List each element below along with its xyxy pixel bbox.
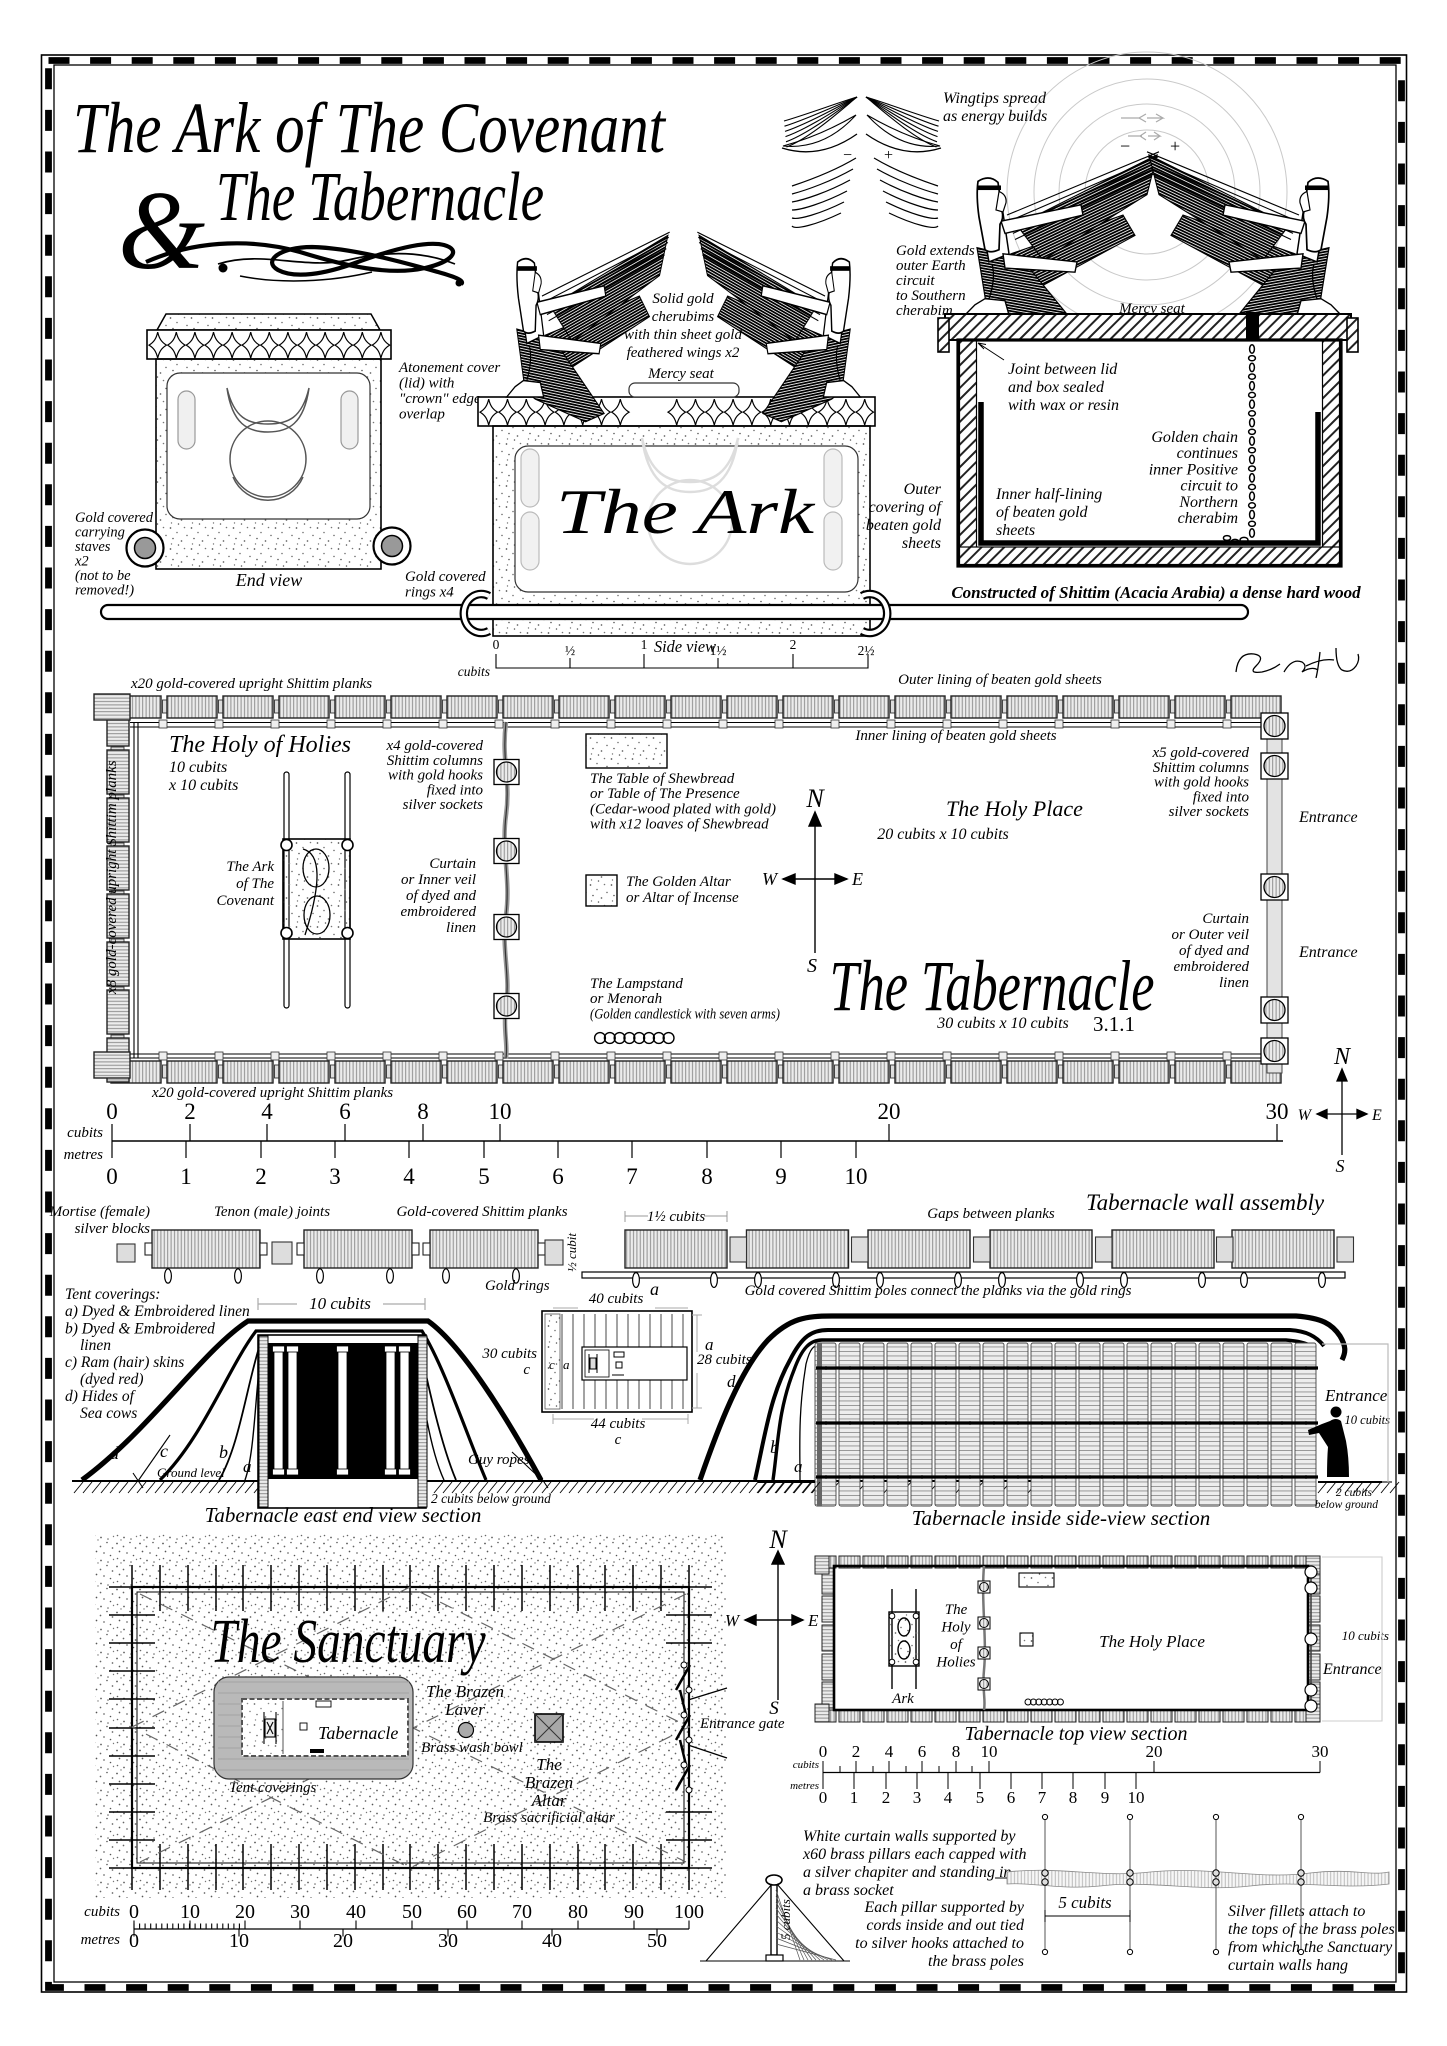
svg-text:4: 4 — [944, 1788, 953, 1807]
svg-text:cubits: cubits — [84, 1904, 120, 1920]
svg-text:40: 40 — [346, 1901, 366, 1923]
svg-text:linen: linen — [1219, 975, 1249, 991]
svg-text:20: 20 — [1146, 1742, 1163, 1761]
svg-text:70: 70 — [512, 1901, 532, 1923]
svg-text:fixed into: fixed into — [427, 782, 484, 798]
svg-text:10: 10 — [1128, 1788, 1145, 1807]
svg-text:circuit: circuit — [896, 273, 935, 289]
svg-text:of dyed and: of dyed and — [1179, 943, 1249, 959]
svg-text:continues: continues — [1177, 445, 1238, 462]
svg-text:2: 2 — [852, 1742, 861, 1761]
svg-text:d) Hides of: d) Hides of — [65, 1388, 137, 1405]
svg-text:Gold rings: Gold rings — [485, 1278, 550, 1294]
svg-text:0: 0 — [493, 637, 500, 652]
svg-text:x5 gold-covered: x5 gold-covered — [1152, 745, 1250, 761]
svg-text:10: 10 — [180, 1901, 200, 1923]
svg-text:6: 6 — [918, 1742, 927, 1761]
svg-text:&: & — [118, 169, 205, 293]
svg-text:of The: of The — [236, 876, 274, 892]
svg-text:c: c — [549, 1357, 555, 1372]
svg-text:silver sockets: silver sockets — [403, 797, 484, 813]
svg-text:6: 6 — [552, 1164, 564, 1189]
svg-text:0: 0 — [819, 1742, 828, 1761]
svg-text:a) Dyed & Embroidered linen: a) Dyed & Embroidered linen — [65, 1303, 250, 1320]
svg-text:W: W — [762, 869, 779, 889]
svg-text:d: d — [110, 1443, 120, 1463]
svg-text:20 cubits x 10 cubits: 20 cubits x 10 cubits — [877, 826, 1009, 843]
svg-text:2: 2 — [184, 1099, 196, 1124]
svg-text:Tabernacle inside side-view se: Tabernacle inside side-view section — [912, 1506, 1210, 1530]
svg-text:N: N — [805, 784, 825, 813]
svg-text:metres: metres — [81, 1932, 121, 1948]
svg-text:40: 40 — [542, 1930, 562, 1952]
svg-text:The Holy of Holies: The Holy of Holies — [169, 732, 351, 758]
svg-text:Shittim columns: Shittim columns — [387, 753, 483, 769]
svg-text:8: 8 — [952, 1742, 961, 1761]
svg-text:7: 7 — [626, 1164, 638, 1189]
svg-text:4: 4 — [885, 1742, 894, 1761]
svg-text:cords inside and out tied: cords inside and out tied — [866, 1917, 1025, 1934]
svg-text:N: N — [768, 1525, 788, 1554]
svg-text:Holies: Holies — [935, 1655, 975, 1671]
svg-text:x20 gold-covered upright Shitt: x20 gold-covered upright Shittim planks — [130, 676, 372, 692]
svg-text:(lid) with: (lid) with — [399, 376, 454, 392]
svg-text:with wax or resin: with wax or resin — [1008, 397, 1119, 414]
svg-text:metres: metres — [64, 1147, 104, 1163]
svg-text:cubits: cubits — [458, 664, 490, 679]
svg-text:linen: linen — [80, 1337, 111, 1354]
svg-text:outer Earth: outer Earth — [896, 258, 966, 274]
svg-text:1½ cubits: 1½ cubits — [647, 1209, 705, 1225]
svg-text:b) Dyed & Embroidered: b) Dyed & Embroidered — [65, 1320, 215, 1337]
svg-text:90: 90 — [624, 1901, 644, 1923]
svg-text:The Brazen: The Brazen — [426, 1682, 504, 1701]
svg-text:8: 8 — [701, 1164, 713, 1189]
svg-text:E: E — [807, 1611, 819, 1630]
svg-text:Gold extends: Gold extends — [896, 243, 975, 259]
svg-text:Brass sacrificial altar: Brass sacrificial altar — [483, 1810, 615, 1826]
svg-text:S: S — [807, 955, 817, 977]
svg-text:1½: 1½ — [710, 643, 727, 658]
svg-text:Tenon (male) joints: Tenon (male) joints — [214, 1204, 330, 1220]
svg-text:2 cubits: 2 cubits — [1336, 1487, 1373, 1499]
svg-text:the brass poles: the brass poles — [928, 1953, 1024, 1970]
svg-text:covering of: covering of — [869, 499, 944, 516]
svg-text:6: 6 — [1007, 1788, 1016, 1807]
svg-text:with x12 loaves of Shewbread: with x12 loaves of Shewbread — [590, 817, 769, 833]
svg-text:Brass wash bowl: Brass wash bowl — [421, 1740, 523, 1756]
svg-text:S: S — [1336, 1156, 1345, 1176]
svg-text:The: The — [536, 1755, 562, 1774]
svg-text:or Altar of Incense: or Altar of Incense — [626, 890, 739, 906]
svg-text:−: − — [1120, 136, 1130, 156]
svg-text:100: 100 — [674, 1901, 704, 1923]
svg-text:Silver fillets attach to: Silver fillets attach to — [1228, 1903, 1365, 1920]
svg-text:Constructed of Shittim (Acacia: Constructed of Shittim (Acacia Arabia) a… — [951, 583, 1361, 602]
svg-text:½ cubit: ½ cubit — [564, 1233, 579, 1272]
svg-text:a: a — [794, 1457, 803, 1476]
svg-text:Entrance: Entrance — [1298, 944, 1358, 961]
svg-text:10: 10 — [489, 1099, 512, 1124]
svg-text:The Holy Place: The Holy Place — [946, 796, 1083, 821]
svg-text:embroidered: embroidered — [400, 904, 476, 920]
svg-text:metres: metres — [790, 1780, 819, 1792]
svg-text:b: b — [219, 1442, 228, 1462]
svg-text:28 cubits: 28 cubits — [697, 1352, 752, 1368]
svg-text:Mortise (female): Mortise (female) — [49, 1204, 150, 1220]
svg-text:Inner lining of beaten gold sh: Inner lining of beaten gold sheets — [854, 728, 1056, 744]
svg-text:60: 60 — [457, 1901, 477, 1923]
svg-text:Altar: Altar — [531, 1791, 567, 1810]
svg-text:Tent coverings:: Tent coverings: — [65, 1286, 160, 1303]
svg-text:Side view: Side view — [654, 637, 717, 656]
svg-text:Outer lining of beaten gold sh: Outer lining of beaten gold sheets — [898, 672, 1102, 688]
svg-text:The Golden Altar: The Golden Altar — [626, 874, 731, 890]
svg-text:silver blocks: silver blocks — [75, 1221, 151, 1237]
svg-text:c: c — [615, 1432, 622, 1448]
svg-text:30 cubits: 30 cubits — [481, 1346, 537, 1362]
svg-text:Outer: Outer — [904, 481, 942, 498]
svg-text:c: c — [523, 1362, 530, 1378]
svg-text:3: 3 — [329, 1164, 341, 1189]
svg-text:10 cubits: 10 cubits — [309, 1294, 371, 1313]
svg-text:sheets: sheets — [902, 535, 941, 552]
svg-text:10: 10 — [229, 1930, 249, 1952]
svg-text:Golden chain: Golden chain — [1151, 429, 1238, 446]
svg-text:with gold hooks: with gold hooks — [1154, 775, 1249, 791]
svg-text:x4 gold-covered: x4 gold-covered — [386, 738, 484, 754]
svg-text:6: 6 — [339, 1099, 351, 1124]
svg-text:40 cubits: 40 cubits — [589, 1291, 644, 1307]
svg-text:3: 3 — [913, 1788, 922, 1807]
svg-text:Sea cows: Sea cows — [80, 1405, 137, 1422]
svg-text:(Golden candlestick with seven: (Golden candlestick with seven arms) — [590, 1006, 780, 1022]
svg-text:80: 80 — [568, 1901, 588, 1923]
svg-text:from which the Sanctuary: from which the Sanctuary — [1228, 1939, 1393, 1956]
svg-text:Entrance: Entrance — [1324, 1386, 1388, 1405]
svg-text:Gaps between planks: Gaps between planks — [927, 1206, 1055, 1222]
svg-text:Mercy seat: Mercy seat — [647, 366, 714, 382]
svg-text:5 cubits: 5 cubits — [1058, 1893, 1112, 1912]
svg-text:White curtain walls supported: White curtain walls supported by — [803, 1828, 1016, 1845]
svg-text:(dyed red): (dyed red) — [80, 1371, 144, 1388]
svg-text:+: + — [1170, 136, 1180, 156]
svg-text:2: 2 — [882, 1788, 891, 1807]
svg-text:cherabim: cherabim — [1178, 510, 1238, 527]
svg-text:Solid gold: Solid gold — [652, 291, 714, 307]
svg-text:of dyed and: of dyed and — [406, 888, 476, 904]
svg-text:c) Ram (hair) skins: c) Ram (hair) skins — [65, 1354, 184, 1371]
svg-text:7: 7 — [1038, 1788, 1047, 1807]
svg-text:0: 0 — [129, 1901, 139, 1923]
svg-text:The Ark: The Ark — [556, 477, 815, 547]
svg-text:b: b — [770, 1437, 779, 1457]
svg-text:Tabernacle east end view secti: Tabernacle east end view section — [205, 1503, 482, 1527]
svg-text:"crown" edge: "crown" edge — [399, 391, 481, 407]
svg-text:Covenant: Covenant — [217, 893, 275, 909]
svg-text:to Southern: to Southern — [896, 288, 966, 304]
svg-text:x8 gold-covered upright Shitti: x8 gold-covered upright Shittim planks — [104, 760, 120, 995]
svg-text:with thin sheet gold: with thin sheet gold — [624, 327, 742, 343]
svg-text:a: a — [243, 1457, 252, 1476]
svg-text:Ark: Ark — [891, 1691, 914, 1707]
svg-text:and box sealed: and box sealed — [1008, 379, 1105, 396]
svg-text:10 cubits: 10 cubits — [1345, 1413, 1391, 1427]
svg-text:Curtain: Curtain — [1202, 911, 1249, 927]
svg-text:4: 4 — [261, 1099, 273, 1124]
svg-text:with gold hooks: with gold hooks — [388, 768, 483, 784]
svg-text:30: 30 — [1266, 1099, 1289, 1124]
svg-text:embroidered: embroidered — [1173, 959, 1249, 975]
svg-text:The Table of Shewbread: The Table of Shewbread — [590, 771, 735, 787]
svg-text:Entrance: Entrance — [1298, 809, 1358, 826]
svg-text:feathered wings x2: feathered wings x2 — [627, 345, 740, 361]
svg-text:Curtain: Curtain — [429, 856, 476, 872]
svg-text:or Outer veil: or Outer veil — [1172, 927, 1249, 943]
svg-text:N: N — [1333, 1044, 1352, 1070]
svg-text:E: E — [851, 869, 863, 889]
svg-text:50: 50 — [402, 1901, 422, 1923]
svg-text:or Inner veil: or Inner veil — [401, 872, 476, 888]
svg-text:rings x4: rings x4 — [405, 585, 454, 601]
svg-text:0: 0 — [129, 1930, 139, 1952]
svg-text:½: ½ — [565, 643, 575, 658]
svg-text:(Cedar-wood plated with gold): (Cedar-wood plated with gold) — [590, 801, 776, 817]
svg-text:The Tabernacle: The Tabernacle — [216, 159, 544, 236]
svg-text:cubits: cubits — [67, 1125, 103, 1141]
svg-text:9: 9 — [1101, 1788, 1110, 1807]
svg-text:cherubims: cherubims — [652, 309, 715, 325]
svg-text:Laver: Laver — [444, 1700, 485, 1719]
svg-text:circuit to: circuit to — [1180, 478, 1238, 495]
svg-text:20: 20 — [878, 1099, 901, 1124]
svg-text:1: 1 — [641, 637, 648, 652]
svg-text:5: 5 — [976, 1788, 985, 1807]
svg-text:Guy ropes: Guy ropes — [468, 1452, 530, 1468]
svg-text:Holy: Holy — [940, 1620, 971, 1636]
svg-text:a brass socket: a brass socket — [803, 1882, 894, 1899]
svg-text:2: 2 — [255, 1164, 267, 1189]
svg-text:below ground: below ground — [1315, 1499, 1378, 1511]
svg-text:Joint between lid: Joint between lid — [1008, 361, 1118, 378]
svg-text:0: 0 — [106, 1164, 118, 1189]
svg-text:the tops of the brass poles: the tops of the brass poles — [1228, 1921, 1395, 1938]
svg-text:The Lampstand: The Lampstand — [590, 976, 683, 992]
svg-text:linen: linen — [446, 920, 476, 936]
svg-text:of beaten gold: of beaten gold — [996, 504, 1089, 521]
svg-text:Northern: Northern — [1178, 494, 1238, 511]
svg-text:curtain walls hang: curtain walls hang — [1228, 1957, 1348, 1974]
svg-text:S: S — [769, 1698, 779, 1719]
svg-text:Gold covered Shittim poles con: Gold covered Shittim poles connect the p… — [745, 1283, 1132, 1299]
svg-text:2½: 2½ — [858, 643, 875, 658]
svg-text:+: + — [884, 147, 893, 164]
svg-text:2: 2 — [790, 637, 797, 652]
svg-text:Gold covered: Gold covered — [405, 569, 486, 585]
svg-text:of: of — [950, 1637, 964, 1653]
svg-text:44 cubits: 44 cubits — [591, 1416, 646, 1432]
svg-text:30: 30 — [290, 1901, 310, 1923]
svg-text:5 cubits: 5 cubits — [778, 1899, 793, 1940]
svg-text:The Ark: The Ark — [226, 859, 274, 875]
svg-text:Shittim columns: Shittim columns — [1153, 760, 1249, 776]
svg-text:silver sockets: silver sockets — [1169, 804, 1250, 820]
svg-text:3.1.1: 3.1.1 — [1093, 1012, 1135, 1036]
svg-text:The Ark of The Covenant: The Ark of The Covenant — [73, 88, 667, 168]
svg-text:1: 1 — [180, 1164, 192, 1189]
svg-text:10 cubits: 10 cubits — [169, 759, 227, 776]
svg-text:c: c — [160, 1441, 168, 1461]
svg-text:x 10 cubits: x 10 cubits — [168, 777, 238, 794]
svg-text:4: 4 — [403, 1164, 415, 1189]
svg-text:The Sanctuary: The Sanctuary — [211, 1608, 486, 1676]
svg-text:a: a — [563, 1357, 570, 1372]
svg-text:beaten gold: beaten gold — [866, 517, 942, 534]
svg-text:Entrance: Entrance — [1322, 1661, 1382, 1678]
svg-text:Tabernacle: Tabernacle — [318, 1723, 398, 1743]
svg-text:removed!): removed!) — [75, 583, 134, 599]
svg-text:Inner half-lining: Inner half-lining — [995, 486, 1102, 503]
svg-text:or Menorah: or Menorah — [590, 991, 662, 1007]
svg-text:inner Positive: inner Positive — [1149, 461, 1238, 478]
svg-text:E: E — [1371, 1107, 1382, 1124]
svg-text:20: 20 — [333, 1930, 353, 1952]
svg-text:x60 brass pillars each capped: x60 brass pillars each capped with — [802, 1846, 1027, 1863]
svg-text:Gold-covered Shittim planks: Gold-covered Shittim planks — [396, 1204, 567, 1220]
svg-text:Tent coverings: Tent coverings — [229, 1780, 317, 1796]
svg-text:a silver chapiter and standing: a silver chapiter and standing in — [803, 1864, 1011, 1881]
svg-text:cubits: cubits — [793, 1759, 819, 1771]
svg-text:sheets: sheets — [996, 522, 1035, 539]
svg-text:Ground level: Ground level — [157, 1465, 225, 1480]
svg-text:overlap: overlap — [399, 407, 445, 423]
svg-text:or Table of The Presence: or Table of The Presence — [590, 786, 740, 802]
svg-text:20: 20 — [235, 1901, 255, 1923]
svg-text:30 cubits x 10 cubits: 30 cubits x 10 cubits — [936, 1015, 1069, 1032]
svg-text:Tabernacle wall assembly: Tabernacle wall assembly — [1086, 1190, 1325, 1215]
svg-text:50: 50 — [647, 1930, 667, 1952]
svg-text:8: 8 — [417, 1099, 429, 1124]
svg-text:W: W — [725, 1611, 741, 1630]
svg-text:W: W — [1298, 1107, 1313, 1124]
svg-text:to silver hooks attached to: to silver hooks attached to — [855, 1935, 1024, 1952]
svg-text:9: 9 — [775, 1164, 787, 1189]
svg-text:The: The — [945, 1602, 968, 1618]
svg-text:30: 30 — [1312, 1742, 1329, 1761]
svg-text:Wingtips spread: Wingtips spread — [943, 90, 1047, 107]
svg-text:30: 30 — [438, 1930, 458, 1952]
svg-text:a: a — [650, 1279, 659, 1299]
svg-text:10: 10 — [981, 1742, 998, 1761]
svg-text:8: 8 — [1069, 1788, 1078, 1807]
svg-text:Each pillar supported by: Each pillar supported by — [863, 1899, 1024, 1916]
svg-text:10: 10 — [845, 1164, 868, 1189]
svg-text:0: 0 — [106, 1099, 118, 1124]
svg-text:The Holy Place: The Holy Place — [1099, 1632, 1205, 1651]
svg-text:End view: End view — [235, 570, 302, 590]
svg-text:5: 5 — [478, 1164, 490, 1189]
svg-text:0: 0 — [819, 1788, 828, 1807]
svg-text:fixed into: fixed into — [1193, 789, 1250, 805]
svg-text:Brazen: Brazen — [525, 1773, 573, 1792]
svg-text:Atonement cover: Atonement cover — [398, 360, 500, 376]
svg-text:as energy builds: as energy builds — [943, 108, 1047, 125]
svg-text:1: 1 — [850, 1788, 859, 1807]
